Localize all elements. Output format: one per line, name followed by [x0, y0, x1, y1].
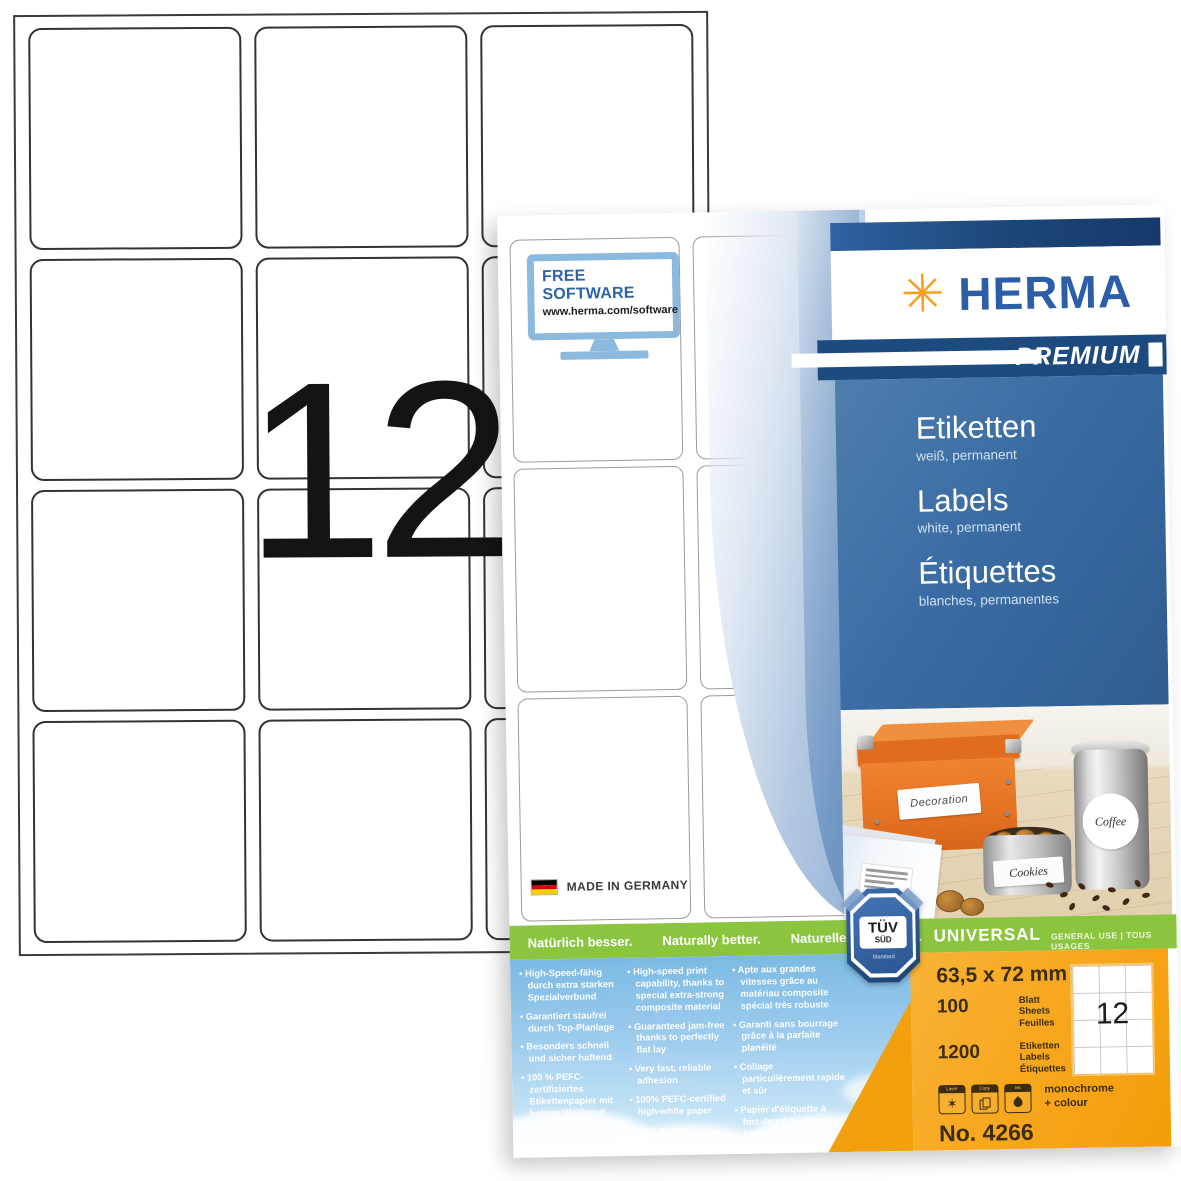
free-software-url: www.herma.com/software	[543, 304, 667, 318]
screw	[875, 819, 880, 824]
order-number: No. 4266	[939, 1119, 1034, 1148]
sheets-spec: 100 Blatt Sheets Feuilles	[937, 994, 1055, 1030]
labels-per-sheet-count: 12	[243, 344, 505, 598]
monitor-icon: FREE SOFTWARE www.herma.com/software	[527, 252, 681, 361]
product-subtitle-fr: blanches, permanentes	[919, 589, 1167, 608]
product-subtitle-en: white, permanent	[917, 516, 1165, 535]
product-package: FREE SOFTWARE www.herma.com/software MAD…	[497, 204, 1180, 1157]
label-cell	[30, 258, 244, 481]
monitor-base	[560, 350, 648, 360]
made-in-text: MADE IN GERMANY	[567, 878, 689, 894]
label-cell	[258, 718, 472, 941]
label-cell	[32, 720, 246, 943]
printer-compatibility: Laser ✶ Copy Ink	[938, 1084, 1031, 1115]
product-image: 12 FREE SOFTWARE www.herma.com/software	[0, 0, 1181, 1181]
mini-sheet-count: 12	[1073, 997, 1153, 1032]
white-stripe	[791, 350, 1041, 368]
copier-icon: Copy	[971, 1084, 999, 1113]
labels-units: Etiketten Labels Étiquettes	[1019, 1040, 1066, 1075]
free-software-title: FREE SOFTWARE	[542, 266, 667, 304]
tagline-de: Natürlich besser.	[528, 933, 633, 950]
label-cell	[31, 489, 245, 712]
sheets-qty: 100	[937, 995, 1019, 1018]
cookies-label: Cookies	[993, 856, 1065, 887]
labels-spec: 1200 Etiketten Labels Étiquettes	[937, 1040, 1066, 1076]
made-in-germany: MADE IN GERMANY	[531, 877, 689, 896]
tier-label: PREMIUM	[1015, 341, 1141, 372]
label-size: 63,5 x 72 mm	[936, 962, 1067, 988]
printing-modes: monochrome + colour	[1044, 1082, 1114, 1111]
laser-printer-icon: Laser ✶	[938, 1085, 966, 1114]
metal-corner	[857, 736, 873, 750]
tuv-sued-badge: TÜV SÜD Standard	[846, 888, 921, 983]
mini-sheet-diagram: 12	[1070, 963, 1155, 1076]
brand-logo: ✳ HERMA	[831, 245, 1163, 340]
product-title-de: Etiketten	[915, 408, 1164, 445]
label-cell	[513, 466, 687, 692]
product-title-fr: Étiquettes	[918, 553, 1167, 590]
metal-corner	[1005, 739, 1021, 753]
product-subtitle-de: weiß, permanent	[916, 444, 1164, 463]
white-block	[1148, 342, 1162, 366]
label-cell	[254, 25, 468, 248]
product-title-en: Labels	[917, 481, 1166, 518]
product-title-panel: Etiketten weiß, permanent Labels white, …	[835, 374, 1169, 710]
screw	[1004, 811, 1009, 816]
orange-wedge	[826, 1001, 914, 1152]
monitor-screen: FREE SOFTWARE www.herma.com/software	[527, 252, 680, 341]
premium-band: PREMIUM	[817, 334, 1167, 380]
labels-qty: 1200	[937, 1041, 1019, 1064]
spec-panel: 63,5 x 72 mm 100 Blatt Sheets Feuilles 1…	[910, 948, 1171, 1150]
tuv-logo: TÜV SÜD	[859, 916, 907, 949]
sheets-units: Blatt Sheets Feuilles	[1019, 994, 1055, 1029]
tagline-en: Naturally better.	[662, 931, 761, 948]
label-cell	[28, 27, 242, 250]
herma-asterisk-icon: ✳	[900, 268, 944, 321]
screw	[1006, 779, 1011, 784]
inkjet-icon: Ink	[1004, 1084, 1032, 1113]
universal-banner: UNIVERSAL GENERAL USE | TOUS USAGES	[933, 914, 1177, 952]
monitor-stand	[589, 339, 619, 352]
label-cell: FREE SOFTWARE www.herma.com/software	[509, 237, 683, 463]
brand-name: HERMA	[958, 263, 1133, 320]
german-flag-icon	[531, 879, 558, 895]
